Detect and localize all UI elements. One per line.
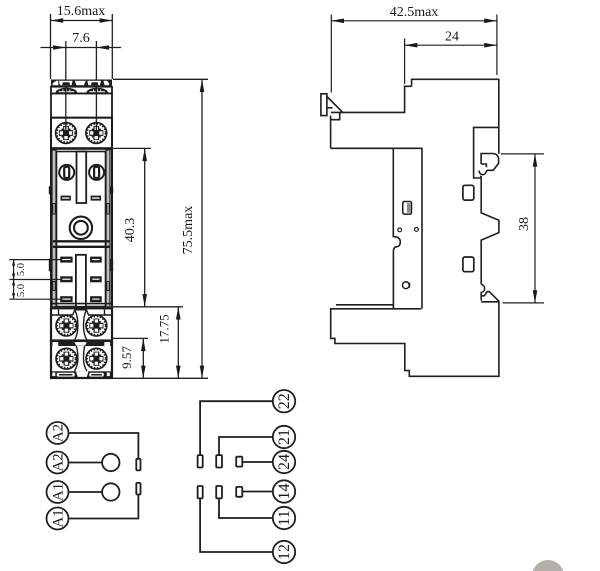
svg-text:24: 24 — [276, 454, 293, 470]
svg-text:14: 14 — [276, 484, 293, 500]
svg-text:24: 24 — [445, 30, 459, 45]
svg-text:42.5max: 42.5max — [390, 5, 439, 20]
svg-text:A2: A2 — [51, 453, 67, 471]
svg-text:A2: A2 — [51, 424, 67, 442]
svg-text:A1: A1 — [51, 483, 67, 501]
svg-text:21: 21 — [276, 429, 293, 445]
svg-text:5.0: 5.0 — [16, 284, 27, 297]
svg-text:A1: A1 — [51, 509, 67, 527]
svg-text:7.6: 7.6 — [72, 31, 90, 46]
svg-text:40.3: 40.3 — [123, 218, 138, 243]
svg-text:9.57: 9.57 — [119, 346, 134, 369]
svg-text:17.75: 17.75 — [157, 314, 172, 343]
svg-text:22: 22 — [276, 393, 293, 409]
svg-text:12: 12 — [276, 544, 293, 560]
svg-text:5.0: 5.0 — [16, 263, 27, 276]
svg-text:15.6max: 15.6max — [57, 4, 106, 19]
svg-text:11: 11 — [276, 510, 293, 525]
svg-text:38: 38 — [517, 217, 532, 231]
svg-text:75.5max: 75.5max — [181, 206, 196, 255]
